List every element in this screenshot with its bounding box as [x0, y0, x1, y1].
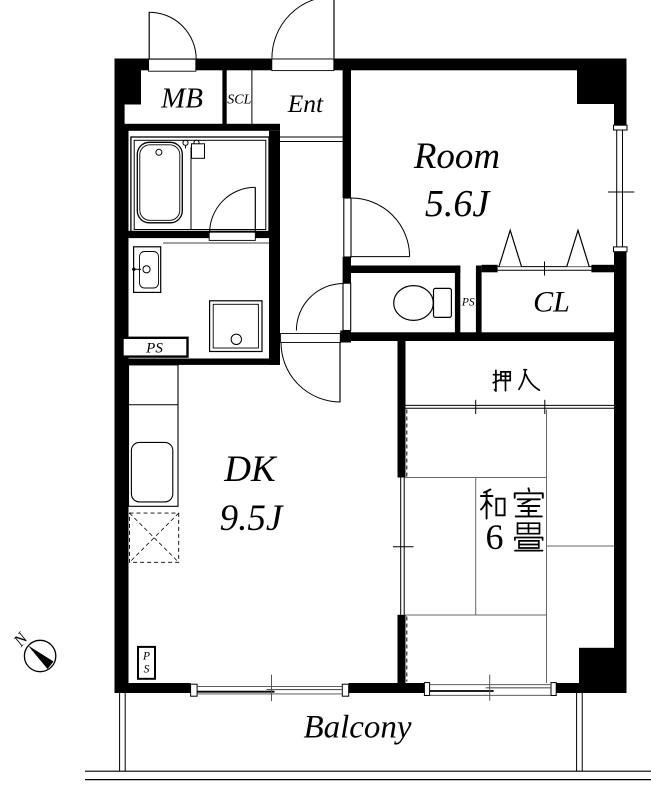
- svg-text:6: 6: [486, 517, 504, 557]
- svg-text:S: S: [144, 664, 150, 676]
- svg-text:DK: DK: [223, 449, 278, 490]
- svg-text:PS: PS: [461, 297, 475, 309]
- svg-text:9.5J: 9.5J: [220, 498, 284, 539]
- svg-text:SCL: SCL: [227, 93, 251, 108]
- svg-text:5.6J: 5.6J: [425, 183, 492, 225]
- svg-text:MB: MB: [160, 83, 203, 115]
- svg-text:Balcony: Balcony: [303, 710, 411, 746]
- svg-text:CL: CL: [533, 286, 570, 319]
- svg-text:Ent: Ent: [287, 89, 324, 118]
- svg-text:PS: PS: [145, 341, 163, 357]
- svg-text:P: P: [142, 651, 150, 663]
- svg-text:Room: Room: [413, 136, 500, 177]
